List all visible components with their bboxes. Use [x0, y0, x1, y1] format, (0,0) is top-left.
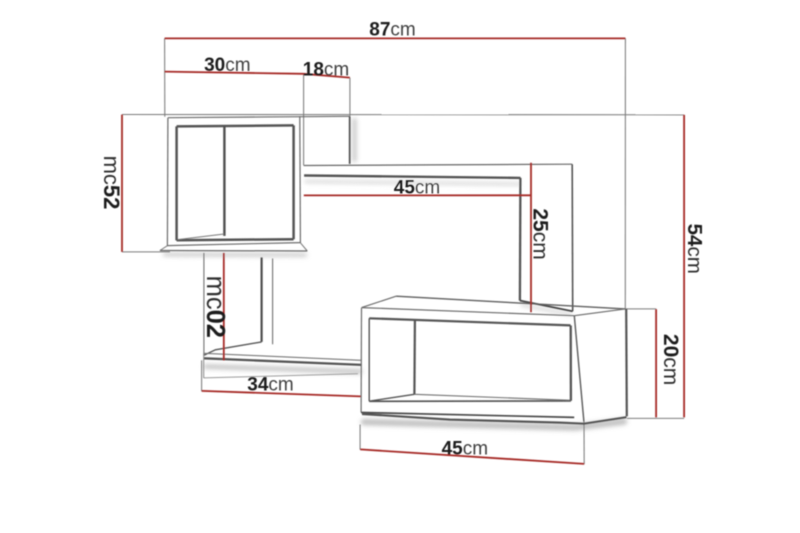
svg-text:mc02: mc02	[201, 276, 229, 338]
svg-text:30cm: 30cm	[204, 55, 250, 76]
svg-text:87cm: 87cm	[369, 20, 415, 41]
svg-text:45cm: 45cm	[442, 439, 488, 460]
svg-text:25cm: 25cm	[529, 208, 552, 259]
svg-text:34cm: 34cm	[247, 374, 293, 395]
svg-text:18cm: 18cm	[303, 60, 349, 81]
svg-text:20cm: 20cm	[659, 334, 682, 385]
svg-text:54cm: 54cm	[683, 224, 706, 274]
svg-text:45cm: 45cm	[394, 177, 440, 198]
svg-text:mc52: mc52	[99, 156, 124, 210]
